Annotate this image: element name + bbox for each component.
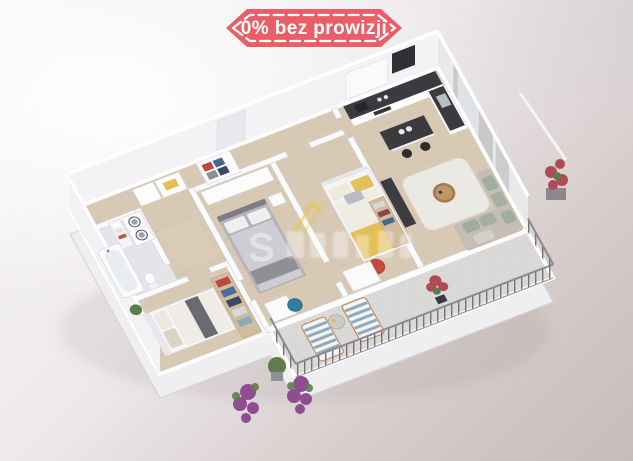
window-flower-box [520,93,568,200]
badge-label: 0% bez prowizji [217,7,411,49]
promo-badge: 0% bez prowizji [217,7,411,49]
floorplan-3d-render [0,0,633,461]
apartment-listing-render: 0% bez prowizji S [0,0,633,461]
